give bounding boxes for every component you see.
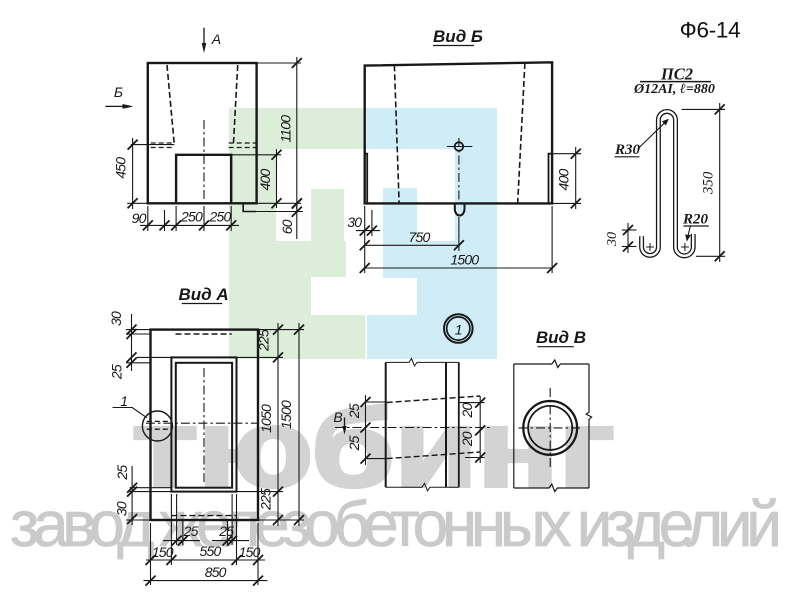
svg-text:завод железобетонных изделий: завод железобетонных изделий xyxy=(10,488,782,560)
svg-text:550: 550 xyxy=(200,543,222,559)
svg-text:150: 150 xyxy=(239,544,261,560)
svg-text:450: 450 xyxy=(112,157,128,179)
svg-text:400: 400 xyxy=(555,169,571,191)
svg-text:Ø12АI, ℓ=880: Ø12АI, ℓ=880 xyxy=(633,82,715,97)
svg-text:1: 1 xyxy=(455,322,462,338)
svg-text:30: 30 xyxy=(114,501,130,516)
svg-text:30: 30 xyxy=(605,232,620,247)
svg-text:1: 1 xyxy=(120,393,127,409)
svg-text:Ф6-14: Ф6-14 xyxy=(680,18,741,43)
svg-text:30: 30 xyxy=(347,214,362,230)
svg-text:25: 25 xyxy=(183,523,199,539)
svg-text:Вид В: Вид В xyxy=(536,328,586,347)
svg-text:20: 20 xyxy=(459,403,475,419)
svg-text:25: 25 xyxy=(108,364,124,380)
svg-text:150: 150 xyxy=(152,544,174,560)
svg-text:1100: 1100 xyxy=(278,115,294,143)
svg-text:1500: 1500 xyxy=(450,252,479,268)
svg-text:25: 25 xyxy=(346,435,362,451)
svg-text:Б: Б xyxy=(114,84,123,100)
svg-text:400: 400 xyxy=(257,169,273,191)
svg-text:350: 350 xyxy=(701,171,717,195)
svg-text:А: А xyxy=(211,31,221,47)
svg-text:30: 30 xyxy=(108,311,124,326)
svg-text:R30: R30 xyxy=(614,142,641,158)
svg-text:R20: R20 xyxy=(682,212,709,228)
svg-text:1050: 1050 xyxy=(258,404,274,433)
svg-text:1500: 1500 xyxy=(278,400,294,429)
svg-text:25: 25 xyxy=(114,465,130,481)
svg-text:225: 225 xyxy=(258,488,274,511)
svg-text:ПС2: ПС2 xyxy=(660,65,693,84)
svg-text:Вид А: Вид А xyxy=(179,285,229,304)
svg-text:250: 250 xyxy=(209,209,232,225)
svg-text:750: 750 xyxy=(409,229,431,245)
svg-text:20: 20 xyxy=(459,431,475,447)
svg-text:90: 90 xyxy=(132,210,147,226)
svg-text:250: 250 xyxy=(180,209,203,225)
svg-text:25: 25 xyxy=(218,523,234,539)
svg-text:Вид Б: Вид Б xyxy=(433,27,483,46)
svg-text:25: 25 xyxy=(346,403,362,419)
svg-text:850: 850 xyxy=(205,564,227,580)
svg-text:60: 60 xyxy=(279,219,295,234)
svg-text:В: В xyxy=(333,409,342,425)
svg-text:225: 225 xyxy=(256,329,272,352)
